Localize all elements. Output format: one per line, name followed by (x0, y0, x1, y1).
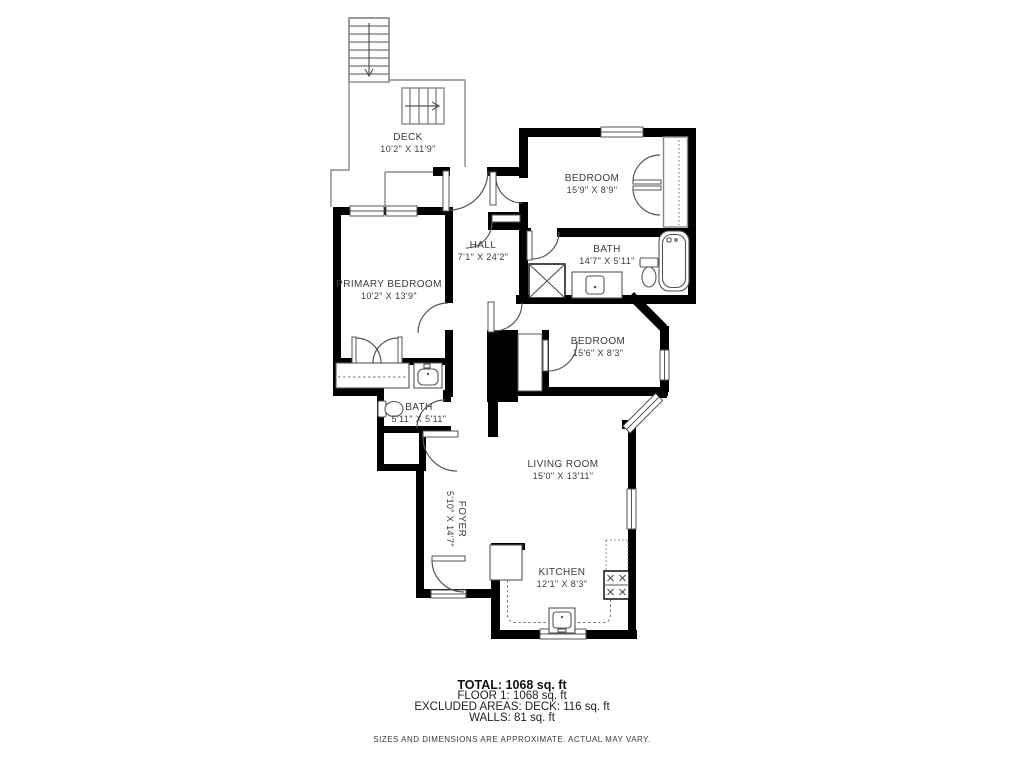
door-arc (418, 303, 448, 333)
refrigerator (606, 540, 628, 571)
wall (333, 388, 383, 396)
closet-door-arc (633, 155, 660, 182)
pocket (518, 334, 542, 391)
door-leaf (443, 171, 449, 211)
diagonal-window (623, 393, 663, 433)
closet-door-arc (633, 188, 660, 215)
deck-stairs-lower (402, 88, 444, 124)
room-label-bath-top: BATH 14'7" X 5'11" (579, 244, 634, 266)
washer-dryer (529, 264, 565, 298)
stove (604, 571, 629, 599)
closet-door-arc (356, 338, 381, 363)
closet-door-arc (373, 338, 398, 363)
door-arc (432, 561, 464, 592)
door-arc (496, 177, 522, 203)
room-label-primary-bedroom: PRIMARY BEDROOM 10'2" X 13'9" (336, 279, 442, 301)
door-leaf (527, 231, 532, 260)
primary-vanity-sink (414, 363, 442, 388)
room-label-bedroom-top: BEDROOM 15'9" X 8'9" (565, 173, 619, 195)
door-leaf (488, 302, 494, 332)
room-label-foyer: FOYER 5'10" X 14'7" (445, 491, 467, 547)
closet-door-leaf (352, 337, 356, 364)
room-label-deck: DECK 10'2" X 11'9" (380, 132, 435, 154)
door-arc (449, 171, 488, 210)
door-arc (494, 303, 522, 331)
wall (519, 128, 528, 178)
door-leaf (432, 556, 465, 561)
wall (628, 527, 636, 565)
area-summary: TOTAL: 1068 sq. ft FLOOR 1: 1068 sq. ft … (0, 680, 1024, 744)
bath-vanity-sink (572, 272, 622, 298)
door-leaf (490, 172, 496, 205)
room-label-bath-left: BATH 5'11" X 5'11" (392, 402, 447, 424)
pocket (492, 215, 520, 222)
room-label-living-room: LIVING ROOM 15'0" X 13'11" (527, 459, 598, 481)
deck-stairs-upper (349, 18, 389, 82)
bathtub (659, 231, 689, 291)
wall (688, 128, 696, 238)
wall (628, 424, 636, 491)
summary-disclaimer: SIZES AND DIMENSIONS ARE APPROXIMATE. AC… (0, 735, 1024, 744)
room-label-hall: HALL 7'1" X 24'2" (458, 240, 509, 262)
wall (488, 395, 498, 437)
closet-door-leaf (633, 180, 661, 184)
wall (445, 207, 453, 303)
primary-closet (336, 363, 409, 388)
closet-top-right (664, 137, 688, 227)
kitchen-sink (549, 608, 575, 633)
floor-plan-page: { "rooms": { "deck": {"name":"DECK","dim… (0, 0, 1024, 768)
door-arc (423, 437, 457, 471)
floor-plan-drawing (0, 0, 1024, 768)
room-label-kitchen: KITCHEN 12'1" X 8'3" (537, 567, 588, 589)
wall (416, 466, 424, 598)
closet-door-leaf (633, 186, 661, 190)
door-leaf (423, 431, 458, 437)
kitchen-cabinet (490, 545, 522, 580)
summary-walls: WALLS: 81 sq. ft (0, 713, 1024, 724)
room-label-bedroom-mid: BEDROOM 15'6" X 8'3" (571, 336, 625, 358)
door-leaf (543, 340, 548, 371)
closet-door-leaf (398, 337, 402, 364)
door-arc (532, 232, 559, 259)
wall (445, 340, 453, 397)
toilet-top-right (640, 258, 658, 287)
